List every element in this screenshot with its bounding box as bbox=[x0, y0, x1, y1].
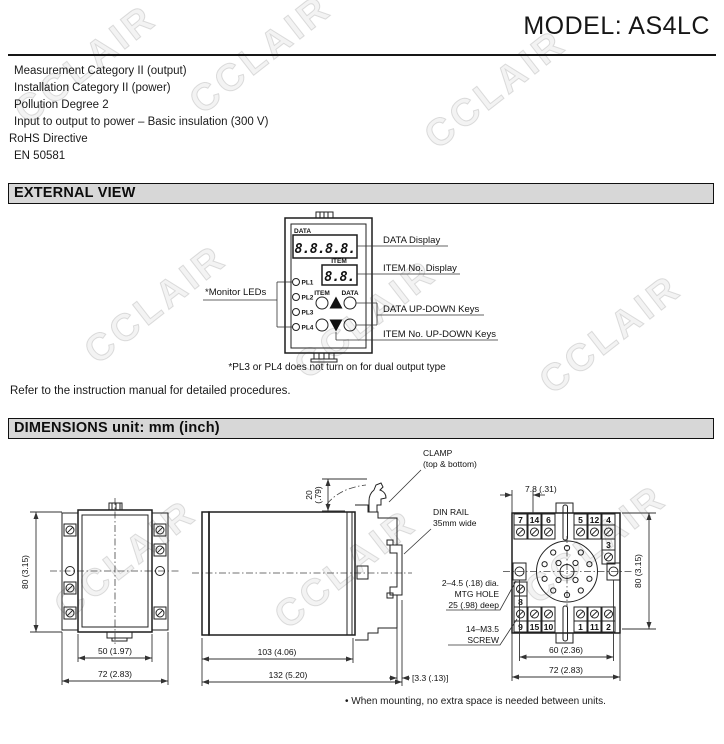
mtg-hole-label: 2–4.5 (.18) dia. bbox=[442, 578, 499, 588]
down-arrow-icon bbox=[330, 320, 343, 332]
terminal-right: 3 bbox=[602, 539, 615, 564]
section-header-dimensions: DIMENSIONS unit: mm (inch) bbox=[8, 418, 714, 439]
spec-line: Measurement Category II (output) bbox=[0, 63, 268, 80]
up-arrow-icon bbox=[330, 297, 343, 309]
data-keys-callout: DATA UP-DOWN Keys bbox=[356, 303, 484, 325]
dim-depth-body: 103 (4.06) bbox=[258, 647, 297, 657]
dim-depth-total: 132 (5.20) bbox=[269, 670, 308, 680]
callout-label: DATA Display bbox=[383, 235, 440, 246]
screw-label: SCREW bbox=[467, 635, 499, 645]
item-down-key[interactable] bbox=[316, 319, 328, 331]
terminal-number: 1 bbox=[578, 622, 583, 632]
dim-front-height: 80 (3.15) bbox=[20, 555, 30, 589]
front-view-drawing: 80 (3.15) 50 (1.97) 72 (2.83) bbox=[20, 498, 180, 685]
section-header-external-view: EXTERNAL VIEW bbox=[8, 183, 714, 204]
monitor-led-pl1: PL1 bbox=[293, 279, 314, 287]
data-keys-label: DATA bbox=[341, 290, 358, 297]
terminal-number: 8 bbox=[518, 597, 523, 607]
page-title: MODEL: AS4LC bbox=[523, 12, 710, 41]
monitor-led-pl2: PL2 bbox=[293, 294, 314, 302]
terminal-number: 7 bbox=[518, 515, 523, 525]
watermark-text: CCLAIR bbox=[417, 21, 576, 158]
monitor-led-pl4: PL4 bbox=[293, 324, 314, 332]
dim-socket-height: 80 (3.15) bbox=[633, 554, 643, 588]
datasheet-page: CCLAIR CCLAIR CCLAIR CCLAIR CCLAIR CCLAI… bbox=[0, 0, 724, 744]
clamp-shape bbox=[369, 483, 386, 512]
din-rail-label: DIN RAIL bbox=[433, 507, 469, 517]
terminal-number: 2 bbox=[606, 622, 611, 632]
mtg-hole-label: 25 (.98) deep bbox=[448, 600, 499, 610]
led-label: PL3 bbox=[302, 310, 314, 317]
dim-rail-gap: [3.3 (.13)] bbox=[412, 673, 448, 683]
spec-line: EN 50581 bbox=[0, 148, 268, 165]
item-keys-callout: ITEM No. UP-DOWN Keys bbox=[336, 329, 498, 340]
terminal-number: 5 bbox=[578, 515, 583, 525]
terminal-number: 11 bbox=[590, 622, 599, 632]
spec-line: Input to output to power – Basic insulat… bbox=[0, 114, 268, 131]
dim-front-width-inner: 50 (1.97) bbox=[98, 646, 132, 656]
terminal-number: 9 bbox=[518, 622, 523, 632]
terminal-number: 12 bbox=[590, 515, 600, 525]
terminal-row-top: 7 14 6 5 12 4 bbox=[514, 514, 615, 539]
screw-label: 14–M3.5 bbox=[466, 624, 499, 634]
item-display-value: 8.8. bbox=[324, 269, 355, 285]
item-up-key[interactable] bbox=[316, 297, 328, 309]
spec-line: Installation Category II (power) bbox=[0, 80, 268, 97]
terminal-number: 4 bbox=[606, 515, 611, 525]
external-view-diagram: DATA 8.8.8.8. ITEM 8.8. PL1 PL2 PL3 PL4 … bbox=[0, 205, 724, 383]
terminal-number: 10 bbox=[544, 622, 554, 632]
mtg-hole-callout: 2–4.5 (.18) dia. MTG HOLE 25 (.98) deep bbox=[442, 578, 516, 610]
din-rail-label: 35mm wide bbox=[433, 518, 477, 528]
monitor-leds-label: *Monitor LEDs bbox=[205, 287, 266, 298]
terminal-number: 14 bbox=[530, 515, 540, 525]
clamp-label: (top & bottom) bbox=[423, 459, 477, 469]
clamp-label: CLAMP bbox=[423, 448, 453, 458]
dim-clamp-inch: (.79) bbox=[313, 486, 323, 504]
terminal-left: 8 bbox=[514, 582, 527, 607]
monitor-leds-callout: *Monitor LEDs bbox=[203, 282, 292, 327]
dim-socket-width: 72 (2.83) bbox=[549, 665, 583, 675]
refer-note: Refer to the instruction manual for deta… bbox=[10, 385, 291, 397]
monitor-led-pl3: PL3 bbox=[293, 309, 314, 317]
screw-callout: 14–M3.5 SCREW bbox=[448, 619, 517, 645]
side-view-drawing: 20 (.79) CLAMP (top & bottom) DIN RAIL 3… bbox=[192, 448, 477, 686]
data-display-label: DATA bbox=[294, 228, 311, 235]
dimensions-diagram: 80 (3.15) 50 (1.97) 72 (2.83) bbox=[0, 442, 724, 714]
terminal-number: 15 bbox=[530, 622, 540, 632]
led-label: PL1 bbox=[302, 280, 314, 287]
dim-front-width-outer: 72 (2.83) bbox=[98, 669, 132, 679]
mtg-hole-label: MTG HOLE bbox=[455, 589, 500, 599]
item-display-label: ITEM bbox=[331, 258, 347, 265]
data-display-callout: DATA Display bbox=[357, 235, 448, 246]
terminal-row-bottom: 9 15 10 1 11 2 bbox=[514, 607, 615, 632]
socket-view-drawing: 7 14 6 5 12 4 3 8 bbox=[442, 484, 656, 681]
title-rule bbox=[8, 54, 716, 56]
callout-label: ITEM No. UP-DOWN Keys bbox=[383, 329, 496, 340]
spec-list: Measurement Category II (output) Install… bbox=[0, 63, 268, 165]
callout-label: ITEM No. Display bbox=[383, 263, 457, 274]
data-display-value: 8.8.8.8. bbox=[294, 241, 355, 257]
led-label: PL4 bbox=[302, 325, 314, 332]
led-label: PL2 bbox=[302, 295, 314, 302]
terminal-number: 3 bbox=[606, 540, 611, 550]
mounting-note: • When mounting, no extra space is neede… bbox=[345, 696, 606, 707]
spec-line: Pollution Degree 2 bbox=[0, 97, 268, 114]
data-up-key[interactable] bbox=[344, 297, 356, 309]
dim-hole-spacing: 60 (2.36) bbox=[549, 645, 583, 655]
callout-label: DATA UP-DOWN Keys bbox=[383, 304, 479, 315]
terminal-number: 6 bbox=[546, 515, 551, 525]
spec-line: RoHS Directive bbox=[0, 131, 268, 148]
external-view-footnote: *PL3 or PL4 does not turn on for dual ou… bbox=[228, 362, 446, 373]
data-down-key[interactable] bbox=[344, 319, 356, 331]
item-keys-label: ITEM bbox=[314, 290, 330, 297]
dim-terminal-pitch: 7.8 (.31) bbox=[525, 484, 557, 494]
